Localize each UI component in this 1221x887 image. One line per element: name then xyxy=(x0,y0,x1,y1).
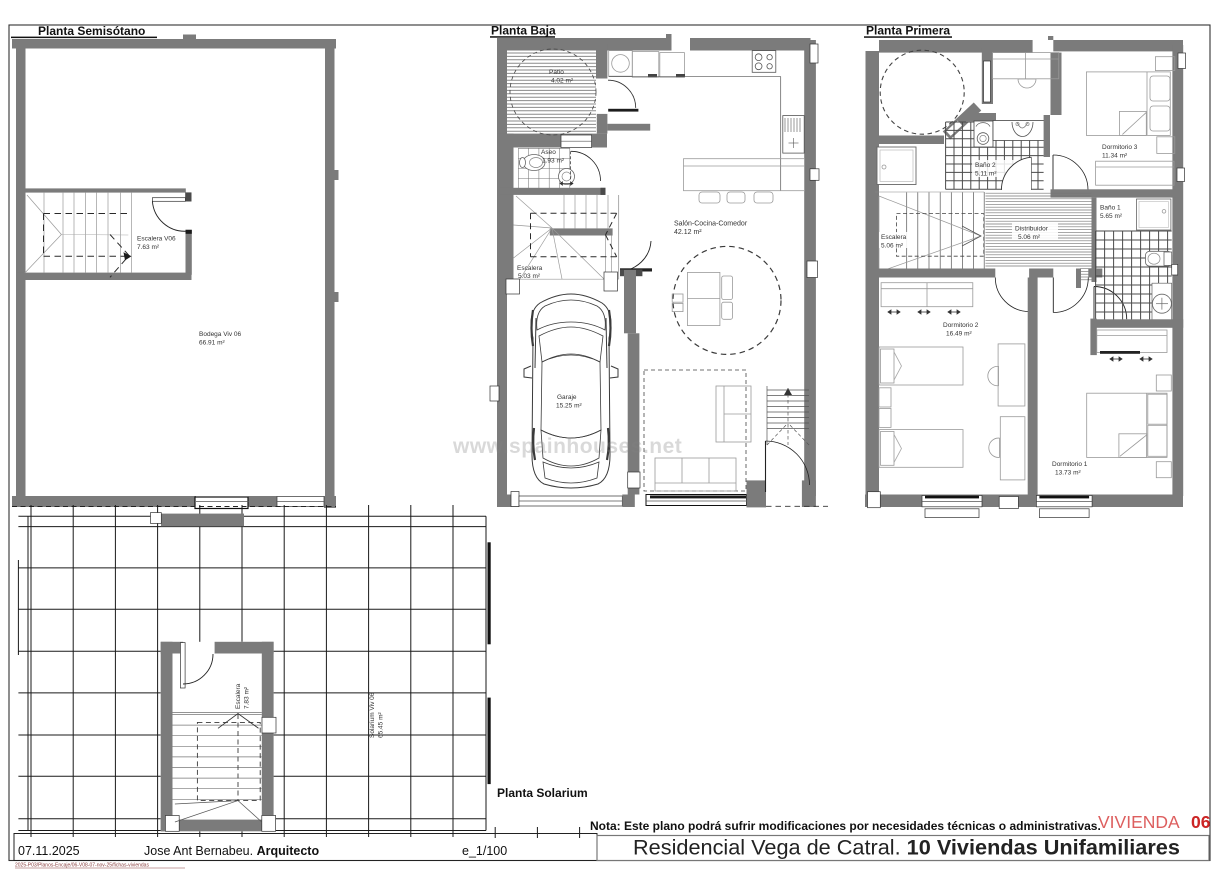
svg-text:Patio: Patio xyxy=(549,69,564,76)
svg-text:65.45 m²: 65.45 m² xyxy=(378,712,385,738)
svg-text:Planta Baja: Planta Baja xyxy=(491,24,556,38)
svg-text:Planta Primera: Planta Primera xyxy=(866,24,950,38)
svg-text:Solarium Viv 06: Solarium Viv 06 xyxy=(369,692,376,738)
svg-text:06: 06 xyxy=(1191,812,1211,832)
svg-text:Residencial Vega de Catral. 10: Residencial Vega de Catral. 10 Viviendas… xyxy=(633,835,1180,860)
svg-text:5.06 m²: 5.06 m² xyxy=(881,243,904,250)
svg-text:5.06 m²: 5.06 m² xyxy=(1018,234,1041,241)
svg-text:5.03 m²: 5.03 m² xyxy=(518,273,541,280)
svg-text:42.12 m²: 42.12 m² xyxy=(674,229,702,236)
svg-text:e_1/100: e_1/100 xyxy=(462,844,507,858)
svg-text:www.spainhouses.net: www.spainhouses.net xyxy=(452,435,682,458)
svg-text:5.11 m²: 5.11 m² xyxy=(975,171,997,178)
svg-text:Distribuidor: Distribuidor xyxy=(1015,226,1049,233)
svg-text:Escalera: Escalera xyxy=(881,234,907,241)
svg-text:4.02 m²: 4.02 m² xyxy=(551,78,574,85)
svg-text:Planta Semisótano: Planta Semisótano xyxy=(38,24,145,38)
svg-text:Baño 2: Baño 2 xyxy=(975,162,996,169)
svg-text:Dormitorio 3: Dormitorio 3 xyxy=(1102,144,1138,151)
svg-text:Dormitorio 1: Dormitorio 1 xyxy=(1052,461,1088,468)
svg-text:Jose Ant Bernabeu. Arquitecto: Jose Ant Bernabeu. Arquitecto xyxy=(144,844,319,858)
svg-text:5.65 m²: 5.65 m² xyxy=(1100,213,1123,220)
svg-text:Escalera V06: Escalera V06 xyxy=(137,236,176,243)
svg-text:7.63 m²: 7.63 m² xyxy=(137,244,160,251)
svg-text:Escalera: Escalera xyxy=(235,683,242,709)
svg-text:15.25 m²: 15.25 m² xyxy=(556,403,582,410)
svg-text:11.34 m²: 11.34 m² xyxy=(1102,153,1128,160)
svg-text:7.83 m²: 7.83 m² xyxy=(244,686,251,709)
svg-text:Baño 1: Baño 1 xyxy=(1100,205,1121,212)
svg-text:VIVIENDA: VIVIENDA xyxy=(1098,812,1180,832)
svg-text:2025-P03/Planos-Encaje/06-V08-: 2025-P03/Planos-Encaje/06-V08-07-nov-25/… xyxy=(15,863,149,869)
svg-text:13.73 m²: 13.73 m² xyxy=(1055,470,1081,477)
svg-text:07.11.2025: 07.11.2025 xyxy=(18,844,80,858)
svg-text:Nota: Este plano podrá sufrir: Nota: Este plano podrá sufrir modificaci… xyxy=(590,819,1101,833)
svg-text:Salón-Cocina-Comedor: Salón-Cocina-Comedor xyxy=(674,221,748,228)
svg-text:1.93 m²: 1.93 m² xyxy=(542,158,565,165)
svg-text:Dormitorio 2: Dormitorio 2 xyxy=(943,322,979,329)
svg-text:16.49 m²: 16.49 m² xyxy=(946,331,972,338)
svg-text:Escalera: Escalera xyxy=(517,265,543,272)
svg-text:Aseo: Aseo xyxy=(541,149,556,156)
svg-text:Bodega Viv 06: Bodega Viv 06 xyxy=(199,331,242,338)
svg-text:66.91 m²: 66.91 m² xyxy=(199,340,225,347)
svg-text:Garaje: Garaje xyxy=(557,394,577,401)
svg-text:Planta Solarium: Planta Solarium xyxy=(497,786,588,800)
